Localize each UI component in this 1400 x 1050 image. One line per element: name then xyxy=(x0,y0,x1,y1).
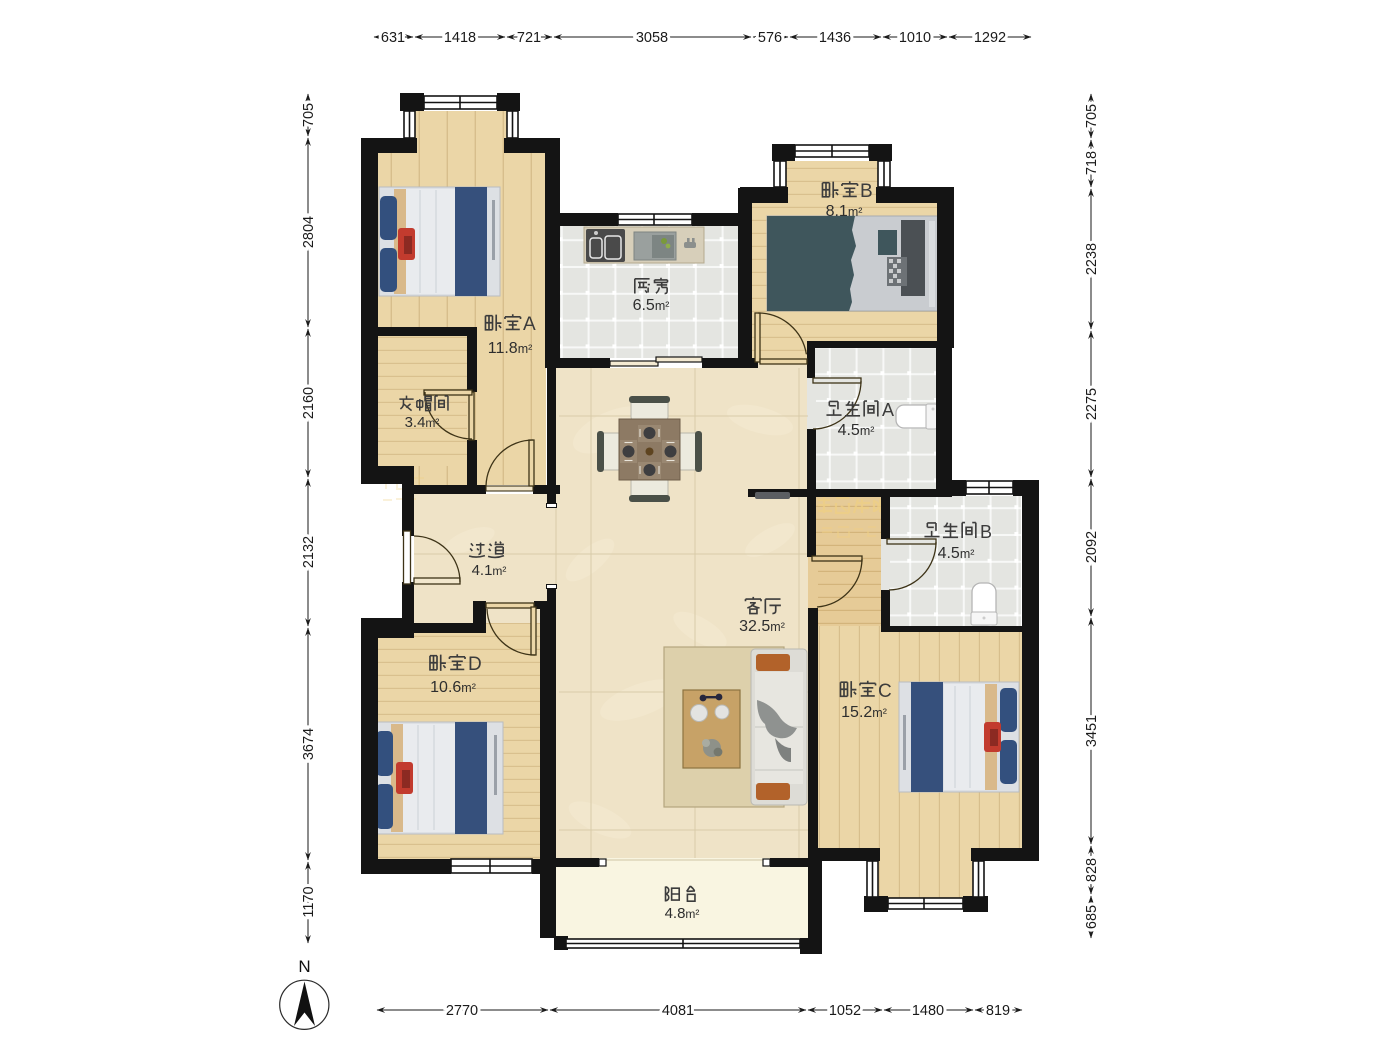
svg-text:2238: 2238 xyxy=(1084,243,1100,275)
svg-text:1436: 1436 xyxy=(819,30,851,46)
svg-text:32.5m²: 32.5m² xyxy=(739,618,785,635)
svg-text:4.8m²: 4.8m² xyxy=(665,905,700,922)
svg-text:828: 828 xyxy=(1084,858,1100,882)
svg-text:D: D xyxy=(468,654,482,675)
svg-text:15.2m²: 15.2m² xyxy=(841,704,887,721)
svg-text:11.8m²: 11.8m² xyxy=(488,340,533,357)
svg-text:3451: 3451 xyxy=(1084,715,1100,747)
svg-text:705: 705 xyxy=(301,103,317,127)
svg-text:1480: 1480 xyxy=(912,1003,944,1019)
svg-text:2132: 2132 xyxy=(301,536,317,568)
svg-text:4.5m²: 4.5m² xyxy=(838,422,875,439)
svg-text:4.1m²: 4.1m² xyxy=(472,562,507,579)
svg-text:718: 718 xyxy=(1084,151,1100,175)
svg-text:3058: 3058 xyxy=(636,30,668,46)
svg-text:721: 721 xyxy=(517,30,541,46)
svg-text:B: B xyxy=(860,181,873,202)
svg-text:576: 576 xyxy=(758,30,782,46)
svg-text:10.6m²: 10.6m² xyxy=(430,679,476,696)
svg-text:1418: 1418 xyxy=(444,30,476,46)
svg-text:819: 819 xyxy=(986,1003,1010,1019)
svg-text:1170: 1170 xyxy=(301,886,317,917)
svg-text:A: A xyxy=(882,400,894,420)
svg-text:2160: 2160 xyxy=(301,387,317,419)
svg-text:4081: 4081 xyxy=(662,1003,694,1019)
svg-text:685: 685 xyxy=(1084,905,1100,929)
svg-text:6.5m²: 6.5m² xyxy=(633,297,670,314)
svg-text:A: A xyxy=(523,314,536,335)
svg-text:3.4m²: 3.4m² xyxy=(405,414,440,431)
svg-text:N: N xyxy=(298,957,310,976)
svg-text:1010: 1010 xyxy=(899,30,931,46)
svg-text:631: 631 xyxy=(381,30,405,46)
svg-text:8.1m²: 8.1m² xyxy=(826,203,863,220)
svg-text:1292: 1292 xyxy=(974,30,1006,46)
svg-text:1052: 1052 xyxy=(829,1003,861,1019)
svg-text:3674: 3674 xyxy=(301,728,317,760)
svg-text:2804: 2804 xyxy=(301,216,317,248)
svg-text:4.5m²: 4.5m² xyxy=(938,545,975,562)
svg-text:B: B xyxy=(980,522,992,542)
svg-text:2275: 2275 xyxy=(1084,388,1100,420)
svg-text:2770: 2770 xyxy=(446,1003,478,1019)
svg-text:C: C xyxy=(878,681,892,702)
svg-text:2092: 2092 xyxy=(1084,531,1100,563)
svg-text:705: 705 xyxy=(1084,104,1100,128)
